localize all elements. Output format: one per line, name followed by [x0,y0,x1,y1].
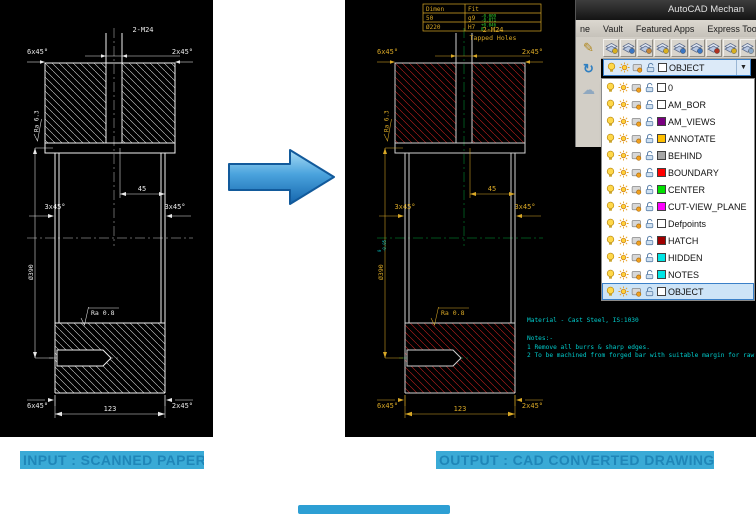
layer-freeze-sun-icon[interactable] [619,62,630,73]
layer-combo-box[interactable]: OBJECT ▼ [603,59,751,76]
layer-lock-icon[interactable] [644,133,655,144]
layer-states-icon[interactable] [637,39,653,57]
layer-isolate-icon[interactable] [671,39,687,57]
notes-block: Material - Cast Steel, IS:1030 Notes:- 1… [527,317,756,359]
layer-color-swatch[interactable] [657,100,666,109]
layer-lock-icon[interactable] [644,235,655,246]
layer-freeze-icon[interactable] [706,39,722,57]
layer-color-swatch[interactable] [657,151,666,160]
layer-on-icon[interactable] [605,82,616,93]
layer-row[interactable]: AM_VIEWS [602,113,754,130]
layer-lock-icon[interactable] [740,39,756,57]
layer-vp-freeze-icon[interactable] [631,116,642,127]
layer-row[interactable]: Defpoints [602,215,754,232]
combo-caret-icon[interactable]: ▼ [736,60,750,75]
layer-row[interactable]: BEHIND [602,147,754,164]
layer-color-swatch[interactable] [657,253,666,262]
layer-row[interactable]: HATCH [602,232,754,249]
layer-row[interactable]: HIDDEN [602,249,754,266]
layer-color-swatch[interactable] [657,168,666,177]
layer-color-swatch[interactable] [657,134,666,143]
conversion-arrow-icon [228,148,336,206]
layer-color-swatch[interactable] [657,185,666,194]
layer-name: 0 [668,83,673,93]
layer-freeze-sun-icon[interactable] [618,133,629,144]
selected-layer-name: OBJECT [669,63,705,73]
layer-lock-icon[interactable] [644,269,655,280]
fit-table-cell: H7 [468,24,476,31]
layer-name: CUT-VIEW_PLANE [668,202,747,212]
layer-name: Defpoints [668,219,706,229]
fit-table-header: Fit [468,6,479,13]
layer-row[interactable]: AM_BOR [602,96,754,113]
layer-manager-icon[interactable] [620,39,636,57]
layer-color-swatch[interactable] [658,63,667,72]
layer-lock-icon[interactable] [644,184,655,195]
input-drawing-panel: 2-M24 6x45° 2x45° Ra 6.3 45 3x45° 3x45° … [0,0,213,437]
layer-on-icon[interactable] [605,184,616,195]
layer-on-icon[interactable] [605,133,616,144]
layer-lock-icon[interactable] [644,99,655,110]
layer-name: AM_VIEWS [668,117,716,127]
bottom-accent-bar [298,505,450,514]
layer-row[interactable]: CUT-VIEW_PLANE [602,198,754,215]
layer-lock-icon[interactable] [644,218,655,229]
layer-freeze-sun-icon[interactable] [618,218,629,229]
layer-vp-freeze-icon[interactable] [631,167,642,178]
menu-item-featured-apps[interactable]: Featured Apps [636,24,695,34]
layer-color-swatch[interactable] [657,270,666,279]
layer-color-swatch[interactable] [657,83,666,92]
layer-lock-icon[interactable] [644,252,655,263]
layer-lock-icon[interactable] [644,286,655,297]
layer-vp-freeze-icon[interactable] [631,201,642,212]
layer-freeze-sun-icon[interactable] [618,167,629,178]
fit-table-header: Dimen [426,6,444,13]
fit-table-cell: Ø220 [426,24,441,31]
layer-unisolate-icon[interactable] [689,39,705,57]
layer-freeze-sun-icon[interactable] [618,99,629,110]
layer-freeze-sun-icon[interactable] [618,82,629,93]
layer-lock-icon[interactable] [644,150,655,161]
layer-name: HIDDEN [668,253,703,263]
layer-name: AM_BOR [668,100,706,110]
layer-row[interactable]: ANNOTATE [602,130,754,147]
fit-table-cell: g9 [468,15,476,22]
layer-on-icon[interactable] [605,286,616,297]
layer-name: BEHIND [668,151,702,161]
material-note: Material - Cast Steel, IS:1030 [527,317,639,324]
layer-row[interactable]: OBJECT [602,283,754,300]
layer-on-icon[interactable] [605,201,616,212]
layer-freeze-sun-icon[interactable] [618,269,629,280]
layer-on-icon[interactable] [605,235,616,246]
window-title: AutoCAD Mechan [575,0,756,20]
layer-color-swatch[interactable] [657,202,666,211]
layer-name: BOUNDARY [668,168,719,178]
layer-row[interactable]: BOUNDARY [602,164,754,181]
fit-table: Dimen Fit 50 g9 Ø220 H7 -0.009 -0.071 +0… [423,4,541,31]
layer-row[interactable]: CENTER [602,181,754,198]
menu-item-vault[interactable]: Vault [603,24,623,34]
cloud-icon[interactable]: ☁ [582,82,595,97]
layer-vp-freeze-icon[interactable] [631,235,642,246]
layer-freeze-sun-icon[interactable] [618,252,629,263]
layer-lock-icon[interactable] [644,82,655,93]
layer-on-icon[interactable] [605,150,616,161]
layer-freeze-sun-icon[interactable] [618,235,629,246]
hatch-pencil-icon[interactable] [603,39,619,57]
layer-previous-icon[interactable] [654,39,670,57]
layer-on-icon[interactable] [605,167,616,178]
layer-vp-freeze-icon[interactable] [631,99,642,110]
layer-color-swatch[interactable] [657,219,666,228]
layer-vp-freeze-icon[interactable] [631,82,642,93]
layer-vp-freeze-icon[interactable] [631,150,642,161]
layer-vp-freeze-icon[interactable] [631,218,642,229]
layer-on-icon[interactable] [605,269,616,280]
output-caption: OUTPUT : CAD CONVERTED DRAWING [436,451,714,469]
layer-name: NOTES [668,270,699,280]
layer-name: OBJECT [668,287,704,297]
layer-row[interactable]: 0 [602,79,754,96]
layer-lock-icon[interactable] [644,167,655,178]
note-item: 2 To be machined from forged bar with su… [527,352,756,359]
layer-name: CENTER [668,185,705,195]
layer-toolbar [601,37,756,59]
layer-color-swatch[interactable] [657,287,666,296]
layer-lock-icon[interactable] [644,201,655,212]
autocad-window: AutoCAD Mechan ne Vault Featured Apps Ex… [575,0,756,312]
layer-vp-freeze-icon[interactable] [632,62,643,73]
layer-on-icon[interactable] [605,252,616,263]
tapped-holes-label: Tapped Holes [470,34,517,42]
layer-freeze-sun-icon[interactable] [618,201,629,212]
layer-dropdown-list: 0 AM_BOR AM_VIEWS ANNOTATE BEHIND [601,78,755,301]
layer-name: HATCH [668,236,698,246]
layer-freeze-sun-icon[interactable] [618,286,629,297]
layer-on-icon[interactable] [605,218,616,229]
layer-freeze-sun-icon[interactable] [618,150,629,161]
notes-heading: Notes:- [527,335,553,342]
pencil-icon[interactable]: ✎ [583,40,594,55]
layer-color-swatch[interactable] [657,236,666,245]
layer-vp-freeze-icon[interactable] [631,252,642,263]
input-caption: INPUT : SCANNED PAPER [20,451,204,469]
dia-tolerance: -0.05 [382,239,387,252]
page: { "captions": { "input": "INPUT : SCANNE… [0,0,756,525]
layer-vp-freeze-icon[interactable] [631,184,642,195]
layer-freeze-sun-icon[interactable] [618,184,629,195]
refresh-swirl-icon[interactable]: ↻ [583,61,594,76]
layer-on-icon[interactable] [606,62,617,73]
layer-lock-icon[interactable] [645,62,656,73]
layer-on-icon[interactable] [605,116,616,127]
note-item: 1 Remove all burrs & sharp edges. [527,344,650,351]
layer-vp-freeze-icon[interactable] [631,133,642,144]
output-drawing-panel: Tapped Holes Dimen Fit 50 g9 Ø220 H7 -0.… [345,0,756,437]
layer-name: ANNOTATE [668,134,716,144]
fit-table-cell: 50 [426,15,434,22]
menu-item-online[interactable]: ne [580,24,590,34]
input-cad-drawing: 2-M24 6x45° 2x45° Ra 6.3 45 3x45° 3x45° … [0,0,213,437]
layer-on-icon[interactable] [605,99,616,110]
layer-off-icon[interactable] [723,39,739,57]
menu-bar: ne Vault Featured Apps Express Tools [575,20,756,37]
layer-row[interactable]: NOTES [602,266,754,283]
side-toolbar: ✎ ↻ ☁ [575,37,601,147]
layer-vp-freeze-icon[interactable] [631,269,642,280]
layer-color-swatch[interactable] [657,117,666,126]
menu-item-express-tools[interactable]: Express Tools [707,24,756,34]
layer-lock-icon[interactable] [644,116,655,127]
layer-vp-freeze-icon[interactable] [631,286,642,297]
layer-freeze-sun-icon[interactable] [618,116,629,127]
